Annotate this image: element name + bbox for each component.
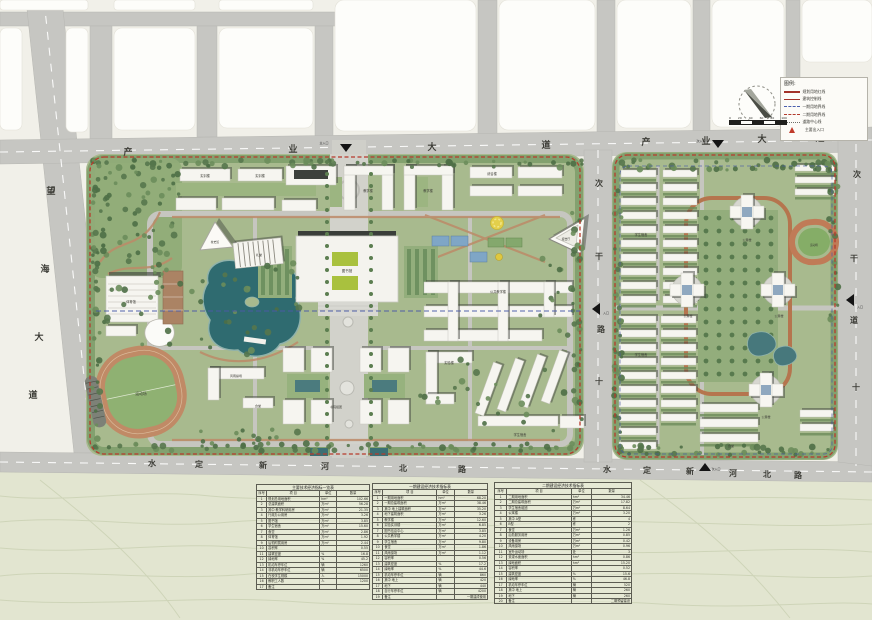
dormitory-slab <box>619 400 656 407</box>
map-label: 水 <box>602 464 612 474</box>
table-cell: 备注 <box>267 584 320 589</box>
dormitory-slab <box>663 226 697 233</box>
legend-entry: 道路中心线 <box>784 118 864 126</box>
dormitory-slab <box>700 419 758 427</box>
building <box>518 184 564 196</box>
map-label: 望 <box>46 185 55 197</box>
scale-tick: 80 <box>770 116 774 120</box>
map-label: 产 <box>641 136 650 148</box>
map-label: 次 <box>595 178 603 188</box>
map-label: 入口 <box>603 311 609 315</box>
map-label: 实训楼 <box>255 173 265 178</box>
scale-tick: 0 <box>729 116 731 120</box>
legend-entry-label: 一期用地界线 <box>803 104 826 110</box>
map-label: 十 <box>852 382 860 392</box>
building <box>388 398 411 424</box>
legend-entry: 建筑控制线 <box>784 96 864 104</box>
legend-sample-solid-thin <box>784 99 800 100</box>
map-label: 河 <box>321 461 329 471</box>
table-cell: 备注 <box>383 594 437 599</box>
legend-sample-dash-blue <box>784 106 800 107</box>
map-label: 食堂 <box>728 443 734 448</box>
map-label: 水 <box>147 458 157 468</box>
table-cell: 一期建成使用 <box>454 594 487 599</box>
dormitory-slab <box>700 404 758 412</box>
dormitory-slab <box>661 372 696 379</box>
map-label: 路 <box>794 470 803 480</box>
building <box>283 346 306 372</box>
building <box>222 196 276 210</box>
legend-entry: 主要出入口 <box>784 126 864 134</box>
map-label: 综合楼 <box>487 171 497 176</box>
building <box>388 346 411 372</box>
building <box>283 398 306 424</box>
map-label: 道 <box>28 389 37 401</box>
table-cell: 20 <box>495 599 507 604</box>
table-row: 17备注 <box>257 584 370 589</box>
map-label: 实验楼 <box>444 360 454 365</box>
map-label: 报告厅 <box>562 237 571 241</box>
scale-tick: 40 <box>749 116 753 120</box>
dormitory-slab <box>619 344 656 351</box>
dormitory-slab <box>621 240 656 247</box>
map-label: 入口 <box>857 305 863 309</box>
map-label: 食堂 <box>255 403 261 408</box>
map-label: 次入口 <box>696 138 705 143</box>
map-label: 路 <box>597 324 606 334</box>
table-cell: 17 <box>257 584 267 589</box>
building-dark-core <box>294 170 328 179</box>
table-cell <box>320 584 337 589</box>
dormitory-slab <box>619 428 656 435</box>
dormitory-slab <box>619 330 656 337</box>
dormitory-slab <box>619 358 656 365</box>
dormitory-slab <box>663 212 697 219</box>
dormitory-slab <box>621 254 656 261</box>
map-label: 路 <box>458 464 467 474</box>
building <box>311 346 334 372</box>
map-label: 产 <box>123 146 132 158</box>
table-cell <box>337 584 370 589</box>
map-label: 学生宿舍 <box>635 352 649 357</box>
indicator-table: 一期建设经济技术指标表序号项 目单位数量1一期用地面积hm²68.202一期总建… <box>372 483 488 600</box>
dormitory-slab <box>661 358 696 365</box>
map-label: 公寓楼 <box>774 313 783 318</box>
map-label: 运动场 <box>135 391 147 396</box>
scale-tick: 60 <box>760 116 764 120</box>
building <box>106 324 138 336</box>
map-label: 书院组团 <box>330 404 342 409</box>
dormitory-slab <box>621 268 656 275</box>
table-cell: 二期预留建设 <box>592 599 632 604</box>
map-label: 北 <box>399 463 407 473</box>
map-label: 教学楼 <box>423 188 433 193</box>
dormitory-slab <box>661 386 696 393</box>
dormitory-slab <box>619 386 656 393</box>
map-label: 大 <box>34 331 43 343</box>
scale-tick: 20 <box>738 116 742 120</box>
assembly-hall <box>233 235 286 268</box>
map-label: 公寓楼 <box>683 313 692 318</box>
map-label: 学生宿舍 <box>635 232 649 237</box>
building <box>478 414 560 426</box>
legend-entry: 一期用地界线 <box>784 103 864 111</box>
map-label: 北 <box>763 469 771 479</box>
map-label: 教学楼 <box>363 188 373 193</box>
indicator-table: 主要技术经济指标一览表序号项 目单位数量1规划总用地面积hm²102.662总建… <box>256 484 370 590</box>
scale-bar-segments <box>729 120 787 125</box>
dormitory-slab <box>661 330 696 337</box>
map-label: 实训楼 <box>200 173 210 178</box>
map-label: 海 <box>40 263 49 275</box>
map-label: 次入口 <box>711 466 720 471</box>
table-cell <box>437 594 454 599</box>
map-label: 礼堂 <box>256 252 262 257</box>
map-label: 图书馆 <box>342 268 353 273</box>
table-cell: 19 <box>373 594 383 599</box>
dormitory-slab <box>800 410 833 417</box>
dormitory-slab <box>663 184 697 191</box>
map-label: 河 <box>729 468 737 478</box>
map-label: 十 <box>595 376 603 386</box>
building <box>282 198 318 211</box>
table-cell: 备注 <box>507 599 571 604</box>
legend-entry-label: 二期用地界线 <box>803 112 826 118</box>
legend-entry: 规划用地红线 <box>784 88 864 96</box>
building <box>424 328 544 341</box>
legend-entry-label: 主要出入口 <box>805 127 824 133</box>
dormitory-slab <box>621 226 656 233</box>
building <box>426 392 456 404</box>
building <box>176 196 218 210</box>
legend-entry-label: 道路中心线 <box>803 119 822 125</box>
legend-panel: 图例: 规划用地红线建筑控制线一期用地界线二期用地界线道路中心线主要出入口 <box>780 77 868 141</box>
dormitory-slab <box>663 240 697 247</box>
dormitory-slab <box>619 414 656 421</box>
legend-sample-solid-thick <box>784 91 800 93</box>
table-cell <box>571 599 592 604</box>
dormitory-slab <box>663 198 697 205</box>
map-label: 风雨操场 <box>230 373 242 378</box>
map-label: 新 <box>259 460 267 470</box>
dormitory-slab <box>661 414 696 421</box>
building <box>470 184 514 196</box>
map-label: 业 <box>288 143 297 155</box>
dormitory-slab <box>661 400 696 407</box>
building <box>208 366 221 400</box>
map-label: 主入口 <box>319 140 328 145</box>
legend-entry-label: 建筑控制线 <box>803 96 822 102</box>
building <box>311 398 334 424</box>
dormitory-slab <box>619 316 656 323</box>
map-label: 干 <box>595 252 603 261</box>
dormitory-slab <box>621 296 656 303</box>
dormitory-slab <box>661 344 696 351</box>
map-label: 公共教学楼 <box>490 289 507 294</box>
map-label: 道 <box>850 315 858 325</box>
dormitory-slab <box>663 254 697 261</box>
legend-entry-label: 规划用地红线 <box>803 89 826 95</box>
dormitory-slab <box>621 212 656 219</box>
map-label: 大 <box>757 133 766 145</box>
legend-sample-tri-red <box>789 127 795 133</box>
building <box>360 346 383 372</box>
map-label: 定 <box>194 459 203 469</box>
map-label: 大 <box>427 141 436 153</box>
map-label: 运动场 <box>810 243 818 247</box>
map-label: 公寓楼 <box>742 237 751 242</box>
legend-sample-dash-red <box>784 114 800 115</box>
legend-entry: 二期用地界线 <box>784 111 864 119</box>
dormitory-slab <box>800 424 833 431</box>
map-label: 次 <box>853 169 861 179</box>
map-label: 体育馆 <box>126 299 136 304</box>
scale-tick: 100 <box>781 116 787 120</box>
masterplan-page: 产业大道主入口产业大道次入口望海大道水定新河北路水定新河北路次入口次干道十次干路… <box>0 0 872 620</box>
map-label: 校史馆 <box>211 240 220 244</box>
map-label: 新 <box>686 466 694 476</box>
dormitory-slab <box>700 434 758 442</box>
right-campus <box>612 152 838 460</box>
dormitory-slab <box>621 184 656 191</box>
map-label: 定 <box>642 465 651 475</box>
scale-bar: 020406080100 <box>729 116 787 125</box>
dormitory-slab <box>621 282 656 289</box>
legend-entries: 规划用地红线建筑控制线一期用地界线二期用地界线道路中心线主要出入口 <box>784 88 864 134</box>
map-label: 公寓楼 <box>761 414 770 419</box>
table-row: 20备注二期预留建设 <box>495 599 632 604</box>
map-label: 学生宿舍 <box>514 432 528 437</box>
dormitory-slab <box>795 177 835 183</box>
map-label: 道 <box>541 139 550 151</box>
legend-title: 图例: <box>784 80 864 87</box>
table-row: 19备注一期建成使用 <box>373 594 488 599</box>
dormitory-slab <box>621 198 656 205</box>
outdoor-courts-west <box>163 271 183 324</box>
indicator-table: 二期建设经济技术指标表序号项 目单位数量1二期用地面积hm²34.462二期总建… <box>494 482 632 604</box>
map-label: 干 <box>850 254 858 263</box>
